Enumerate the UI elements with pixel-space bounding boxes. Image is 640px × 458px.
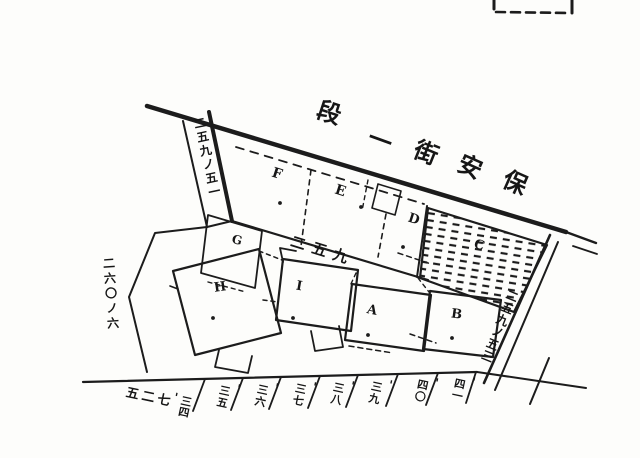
plot-c-hatched xyxy=(420,208,547,312)
left-boundary xyxy=(129,227,207,372)
small-structure-e-d xyxy=(372,184,401,215)
dash-e-d xyxy=(362,180,368,211)
map-linework xyxy=(0,0,640,458)
plot-label-b: B xyxy=(450,307,463,321)
plot-h-outline xyxy=(173,249,281,355)
street-line-extension xyxy=(566,232,596,243)
dash-h-i-mid xyxy=(263,300,278,302)
cadastral-map: 段 一 街 安 保 F E D G C H I A B 二五九 二五九ノ五一 二… xyxy=(0,0,640,458)
plot-a-outline xyxy=(345,284,431,351)
plot-i-outline xyxy=(276,259,358,331)
dash-under-a xyxy=(349,346,393,353)
plot-h-annex xyxy=(215,350,252,373)
divider-e-d-dashed xyxy=(378,214,386,257)
bottom-lot-first-block: 五二七 xyxy=(124,385,174,410)
bottom-boundary-extension xyxy=(477,372,586,388)
street-line-extension-2 xyxy=(573,246,597,254)
top-partial-box xyxy=(494,0,572,13)
street-setback-dashed xyxy=(236,147,424,204)
plot-label-h: H xyxy=(213,280,227,295)
